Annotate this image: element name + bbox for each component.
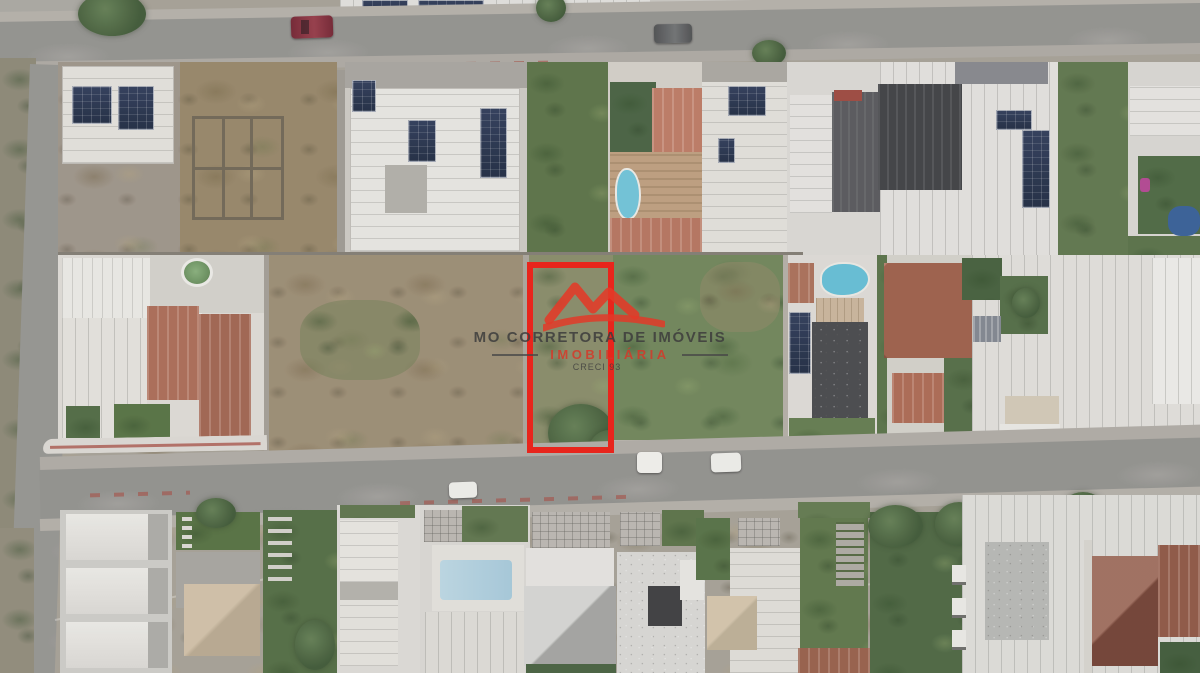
flat-roof bbox=[526, 548, 614, 586]
beige-hip-roof bbox=[707, 596, 757, 650]
kidney-pool bbox=[615, 168, 641, 220]
overgrown-lot bbox=[1058, 62, 1128, 255]
solar-array bbox=[996, 110, 1032, 130]
tree bbox=[196, 498, 236, 528]
paver-driveway bbox=[424, 510, 462, 542]
foundation-grid bbox=[192, 116, 284, 220]
pergola bbox=[973, 316, 1001, 342]
lawn-strip bbox=[696, 518, 730, 580]
townhouse-trim bbox=[148, 622, 168, 668]
solar-array bbox=[728, 86, 766, 116]
solar-array bbox=[1022, 130, 1050, 208]
balcony bbox=[952, 565, 966, 585]
balcony bbox=[952, 630, 966, 650]
terracotta-roof-lg bbox=[1092, 556, 1158, 666]
solar-array bbox=[408, 120, 436, 162]
highlight-rectangle bbox=[527, 262, 614, 453]
shrub-row bbox=[798, 502, 870, 518]
car-white bbox=[449, 482, 478, 499]
car-red bbox=[291, 15, 334, 38]
house-roof bbox=[340, 600, 398, 666]
pitched-roof bbox=[524, 586, 616, 666]
dark-roof bbox=[832, 92, 880, 212]
townhouse-roof bbox=[66, 514, 148, 560]
solar-array bbox=[789, 312, 811, 374]
weed-patch bbox=[300, 300, 420, 380]
round-pool-green bbox=[181, 258, 213, 287]
lawn bbox=[610, 82, 656, 152]
townhouse-trim bbox=[148, 568, 168, 614]
paver-driveway bbox=[620, 512, 660, 546]
pool-dark bbox=[1168, 206, 1200, 236]
grass-lot-north bbox=[527, 62, 608, 255]
pool-light bbox=[440, 560, 512, 600]
lawn bbox=[66, 406, 100, 438]
hedge bbox=[340, 505, 415, 518]
stone-path bbox=[836, 522, 864, 586]
terracotta-roof bbox=[610, 218, 702, 254]
bottom-left-shoulder bbox=[0, 528, 34, 673]
gray-pitched-roof bbox=[985, 542, 1049, 640]
house-roof bbox=[1130, 86, 1200, 136]
house-roof bbox=[790, 95, 832, 213]
tree bbox=[868, 505, 923, 547]
solar-array bbox=[72, 86, 112, 124]
car-red-windshield bbox=[301, 20, 309, 34]
patio bbox=[340, 582, 398, 600]
patio bbox=[385, 165, 427, 213]
aerial-photo: MO CORRETORA DE IMÓVEIS IMOBILIÁRIA CREC… bbox=[0, 0, 1200, 673]
driveway bbox=[702, 62, 787, 82]
house-roof bbox=[340, 520, 398, 582]
flat-roof bbox=[955, 62, 1048, 84]
balcony bbox=[952, 598, 966, 618]
charcoal-roof bbox=[878, 84, 962, 190]
townhouse-trim bbox=[148, 514, 168, 560]
hedge bbox=[1128, 236, 1200, 255]
terracotta-roof bbox=[788, 263, 814, 303]
dark-garden-corner bbox=[1160, 642, 1200, 673]
lawn bbox=[526, 664, 616, 673]
terracotta-roof bbox=[798, 648, 876, 673]
ladder-path bbox=[268, 515, 292, 581]
paver-driveway bbox=[738, 518, 780, 546]
solar-array bbox=[352, 80, 376, 112]
townhouse-roof bbox=[66, 568, 148, 614]
magenta-object bbox=[1140, 178, 1150, 192]
terracotta-hip-roof bbox=[884, 263, 972, 358]
paver-driveway bbox=[532, 512, 610, 548]
red-ridge bbox=[834, 90, 862, 101]
townhouse-roof bbox=[66, 622, 148, 668]
charcoal-box bbox=[648, 586, 682, 626]
white-roof bbox=[1152, 258, 1200, 404]
shrubs bbox=[462, 506, 528, 542]
lawn bbox=[114, 404, 170, 438]
lawn-dark bbox=[962, 258, 1002, 300]
terracotta-outbuilding bbox=[892, 373, 944, 423]
tree bbox=[295, 620, 335, 670]
van-white bbox=[637, 452, 662, 473]
wall-strip bbox=[1084, 540, 1092, 673]
car-white bbox=[711, 452, 742, 472]
paver-patio bbox=[816, 298, 864, 322]
charcoal-roof bbox=[812, 322, 868, 418]
beige-roof bbox=[184, 584, 260, 656]
terracotta-roof bbox=[147, 306, 199, 400]
dry-patch bbox=[700, 262, 780, 332]
solar-array bbox=[118, 86, 154, 130]
boundary-wall bbox=[337, 70, 345, 255]
terracotta-roof-lg bbox=[1158, 545, 1200, 637]
solar-array bbox=[718, 138, 735, 163]
solar-array bbox=[480, 108, 507, 178]
tree bbox=[1012, 288, 1040, 318]
house-roof bbox=[425, 612, 525, 673]
stepping-stones bbox=[182, 514, 192, 548]
terracotta-roof bbox=[199, 314, 251, 438]
car-gray bbox=[654, 24, 692, 44]
